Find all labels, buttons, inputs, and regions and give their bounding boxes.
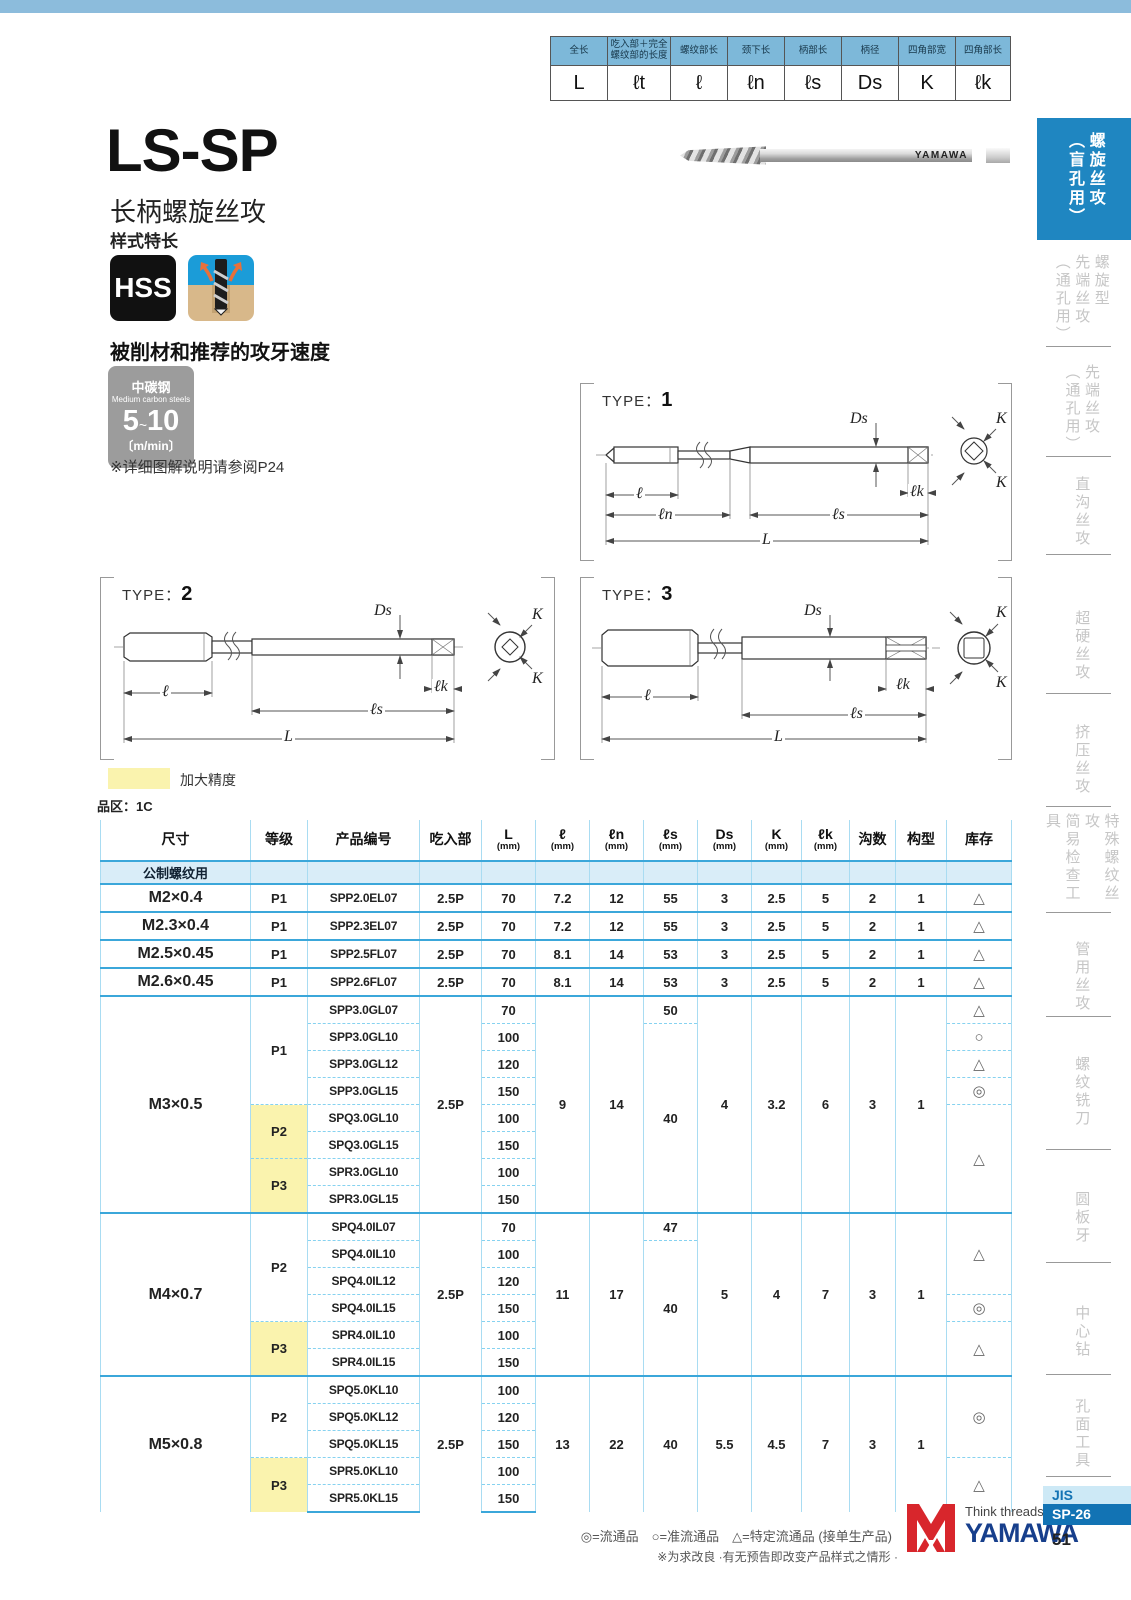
table-cell: SPR3.0GL15 — [308, 1186, 420, 1214]
sidebar-tab-spiral-tap-blind-hole[interactable]: 螺旋丝攻 （盲孔用） — [1037, 118, 1131, 240]
top-bar — [0, 0, 1131, 13]
table-cell: 2.5 — [752, 968, 802, 996]
dim-label-ls: ℓs — [368, 702, 385, 718]
table-cell: 2.5P — [420, 884, 482, 912]
col-grade: 等级 — [251, 820, 308, 861]
dim-label-ds: Ds — [848, 411, 870, 427]
table-cell: 1 — [896, 912, 947, 940]
table-cell: SPR3.0GL10 — [308, 1159, 420, 1186]
table-cell: SPQ4.0IL12 — [308, 1268, 420, 1295]
col-lk: ℓk(mm) — [802, 820, 850, 861]
dim-col-symbol: ℓk — [956, 66, 1011, 101]
table-cell — [850, 861, 896, 884]
sidebar-tab-hole-surface-tools[interactable]: 孔面工具 — [1032, 1390, 1131, 1477]
dimension-legend-table: 全长 吃入部＋完全螺纹部的长度 螺纹部长 颈下长 柄部长 柄径 四角部宽 四角部… — [550, 36, 1011, 101]
table-cell: 2.5P — [420, 996, 482, 1213]
table-cell: M5×0.8 — [101, 1376, 251, 1512]
speed-box: 中碳钢 Medium carbon steels 5~10 〔m/min〕 — [108, 366, 194, 468]
table-cell: M2.6×0.45 — [101, 968, 251, 996]
sidebar-tab-center-drill[interactable]: 中心钻 — [1032, 1288, 1131, 1375]
table-cell: SPQ5.0KL12 — [308, 1404, 420, 1431]
table-cell: SPQ4.0IL10 — [308, 1241, 420, 1268]
table-cell: 70 — [482, 912, 536, 940]
table-cell: 14 — [590, 968, 644, 996]
dim-col-cn: 螺纹部长 — [671, 37, 728, 66]
table-cell: SPP2.5FL07 — [308, 940, 420, 968]
table-cell — [698, 861, 752, 884]
hss-label: HSS — [114, 272, 172, 304]
col-l: ℓ(mm) — [536, 820, 590, 861]
table-cell: 1 — [896, 968, 947, 996]
table-cell: P1 — [251, 996, 308, 1105]
table-cell: SPR4.0IL10 — [308, 1322, 420, 1349]
table-cell: M3×0.5 — [101, 996, 251, 1213]
col-ls: ℓs(mm) — [644, 820, 698, 861]
table-cell: ○ — [947, 1024, 1012, 1051]
dim-col-cn: 全长 — [551, 37, 608, 66]
col-Ds: Ds(mm) — [698, 820, 752, 861]
table-cell: 14 — [590, 996, 644, 1213]
table-cell: △ — [947, 968, 1012, 996]
tap-square-end — [986, 148, 1010, 163]
table-cell: SPP2.6FL07 — [308, 968, 420, 996]
table-cell: SPP3.0GL10 — [308, 1024, 420, 1051]
table-cell: 7.2 — [536, 912, 590, 940]
table-cell: 150 — [482, 1431, 536, 1458]
table-cell: P3 — [251, 1159, 308, 1214]
table-cell: SPQ5.0KL15 — [308, 1431, 420, 1458]
col-flutes: 沟数 — [850, 820, 896, 861]
dim-label-l: ℓ — [160, 684, 171, 700]
table-cell: 5 — [802, 968, 850, 996]
table-cell: 150 — [482, 1349, 536, 1377]
dim-label-l: ℓ — [634, 486, 645, 502]
table-cell: P3 — [251, 1458, 308, 1513]
table-cell: 2.5 — [752, 912, 802, 940]
tap-flutes — [680, 146, 766, 165]
table-cell: 2.5P — [420, 912, 482, 940]
spec-header-row: 尺寸 等级 产品编号 吃入部 L(mm) ℓ(mm) ℓn(mm) ℓs(mm)… — [101, 820, 1012, 861]
dim-label-ln: ℓn — [656, 507, 675, 523]
table-cell: SPP3.0GL07 — [308, 996, 420, 1024]
table-row: M2×0.4P1SPP2.0EL072.5P707.2125532.5521△ — [101, 884, 1012, 912]
table-cell: 53 — [644, 968, 698, 996]
sidebar-tab-carbide-tap[interactable]: 超硬丝攻 — [1032, 598, 1131, 694]
table-cell: 2.5P — [420, 1376, 482, 1512]
page-subtitle: 长柄螺旋丝攻 — [110, 192, 266, 229]
table-cell: 1 — [896, 1376, 947, 1512]
table-cell: 50 — [644, 996, 698, 1024]
table-cell: SPP2.3EL07 — [308, 912, 420, 940]
table-cell: 11 — [536, 1213, 590, 1376]
sidebar-tab-round-die[interactable]: 圆板牙 — [1032, 1172, 1131, 1263]
dim-col-symbol: L — [551, 66, 608, 101]
table-cell: 100 — [482, 1322, 536, 1349]
table-cell: SPQ5.0KL10 — [308, 1376, 420, 1404]
oversize-legend-label: 加大精度 — [180, 770, 236, 790]
table-cell: △ — [947, 912, 1012, 940]
table-cell: 3 — [850, 996, 896, 1213]
style-note: 样式特长 — [110, 227, 178, 252]
dim-col-cn: 柄径 — [842, 37, 899, 66]
table-cell: M4×0.7 — [101, 1213, 251, 1376]
table-cell: P3 — [251, 1322, 308, 1377]
sidebar-tab-point-tap-through-hole[interactable]: 先端丝攻 （通孔用） — [1032, 360, 1131, 457]
table-cell: 2 — [850, 940, 896, 968]
sidebar-tab-special-thread-tools[interactable]: 特殊螺纹丝攻 简易检查工具 — [1032, 813, 1131, 913]
table-cell: 3 — [698, 968, 752, 996]
table-cell: 40 — [644, 1376, 698, 1512]
table-cell — [590, 861, 644, 884]
dim-col-cn: 吃入部＋完全螺纹部的长度 — [608, 37, 671, 66]
table-cell: 70 — [482, 1213, 536, 1241]
table-cell: SPR5.0KL10 — [308, 1458, 420, 1485]
table-cell: 53 — [644, 940, 698, 968]
table-cell: 70 — [482, 996, 536, 1024]
dim-label-k-bottom: K — [530, 671, 545, 687]
table-cell — [251, 861, 308, 884]
dim-label-k-top: K — [994, 605, 1009, 621]
dim-col-cn: 颈下长 — [728, 37, 785, 66]
col-K: K(mm) — [752, 820, 802, 861]
table-cell: 2.5 — [752, 940, 802, 968]
table-cell: 2 — [850, 912, 896, 940]
table-cell: 55 — [644, 912, 698, 940]
table-cell: 120 — [482, 1051, 536, 1078]
table-cell: 150 — [482, 1295, 536, 1322]
table-cell: SPP3.0GL15 — [308, 1078, 420, 1105]
table-row: M3×0.5P1SPP3.0GL072.5P709145043.2631△ — [101, 996, 1012, 1024]
dim-label-ls: ℓs — [830, 507, 847, 523]
dim-label-lk: ℓk — [908, 484, 926, 500]
table-cell: 40 — [644, 1241, 698, 1377]
col-L: L(mm) — [482, 820, 536, 861]
photo-brand-text: YAMAWA — [915, 150, 968, 161]
table-cell: △ — [947, 1213, 1012, 1295]
table-cell: M2.5×0.45 — [101, 940, 251, 968]
table-cell: 2.5P — [420, 1213, 482, 1376]
dim-col-symbol: ℓs — [785, 66, 842, 101]
dim-col-symbol: Ds — [842, 66, 899, 101]
catalog-page: 全长 吃入部＋完全螺纹部的长度 螺纹部长 颈下长 柄部长 柄径 四角部宽 四角部… — [0, 0, 1131, 1600]
table-cell: 3 — [698, 912, 752, 940]
table-cell: SPP2.0EL07 — [308, 884, 420, 912]
dim-col-cn: 柄部长 — [785, 37, 842, 66]
table-cell: 100 — [482, 1458, 536, 1485]
table-cell: 150 — [482, 1186, 536, 1214]
table-cell: △ — [947, 1051, 1012, 1078]
col-ln: ℓn(mm) — [590, 820, 644, 861]
table-cell — [947, 861, 1012, 884]
speed-heading: 被削材和推荐的攻牙速度 — [110, 336, 330, 365]
table-cell: 6 — [802, 996, 850, 1213]
table-cell: 70 — [482, 968, 536, 996]
table-cell: SPQ3.0GL10 — [308, 1105, 420, 1132]
table-cell: 5 — [802, 884, 850, 912]
table-cell: SPQ3.0GL15 — [308, 1132, 420, 1159]
table-cell: 150 — [482, 1485, 536, 1513]
table-cell: 120 — [482, 1404, 536, 1431]
dim-col-symbol: ℓ — [671, 66, 728, 101]
table-cell — [644, 861, 698, 884]
table-cell: 150 — [482, 1078, 536, 1105]
col-type: 构型 — [896, 820, 947, 861]
table-cell: P2 — [251, 1376, 308, 1458]
dim-label-lk: ℓk — [432, 679, 450, 695]
table-cell: 8.1 — [536, 968, 590, 996]
diagram-type-3: TYPE：3 — [580, 577, 1012, 760]
footer-note: ※为求改良 ·有无预告即改变产品样式之情形 · — [480, 1548, 898, 1565]
col-size: 尺寸 — [101, 820, 251, 861]
dim-label-l: ℓ — [642, 688, 653, 704]
table-cell: 17 — [590, 1213, 644, 1376]
table-cell: 9 — [536, 996, 590, 1213]
dim-col-symbol: K — [899, 66, 956, 101]
table-cell: 100 — [482, 1241, 536, 1268]
table-cell: 5 — [698, 1213, 752, 1376]
dim-label-ds: Ds — [372, 603, 394, 619]
yamawa-mark-icon — [903, 1498, 959, 1554]
dim-col-symbol: ℓt — [608, 66, 671, 101]
dim-label-ds: Ds — [802, 603, 824, 619]
dim-label-L: L — [282, 729, 295, 745]
table-cell — [752, 861, 802, 884]
table-cell: 3 — [850, 1376, 896, 1512]
table-cell: P2 — [251, 1213, 308, 1322]
table-cell: M2.3×0.4 — [101, 912, 251, 940]
table-row: M4×0.7P2SPQ4.0IL072.5P7011174754731△ — [101, 1213, 1012, 1241]
table-cell: SPQ4.0IL15 — [308, 1295, 420, 1322]
table-cell: ◎ — [947, 1078, 1012, 1105]
table-cell: 7 — [802, 1213, 850, 1376]
tap-drawing-type-3 — [580, 603, 1012, 759]
table-cell: 100 — [482, 1159, 536, 1186]
table-cell: 70 — [482, 940, 536, 968]
dim-label-k-top: K — [530, 607, 545, 623]
table-cell: 8.1 — [536, 940, 590, 968]
speed-range: 5~10 — [108, 406, 194, 438]
sidebar-tab-spiral-point-tap[interactable]: 螺旋型 先端丝攻 （通孔用） — [1032, 250, 1131, 347]
table-cell: M2×0.4 — [101, 884, 251, 912]
dim-col-cn: 四角部长 — [956, 37, 1011, 66]
table-cell: 100 — [482, 1376, 536, 1404]
material-cn: 中碳钢 — [108, 380, 194, 396]
table-cell: P2 — [251, 1105, 308, 1159]
dim-label-k-top: K — [994, 411, 1009, 427]
table-cell: △ — [947, 1105, 1012, 1214]
sidebar-tab-pipe-tap[interactable]: 管用丝攻 — [1032, 936, 1131, 1017]
table-cell: 4 — [698, 996, 752, 1213]
dimension-legend-header-row: 全长 吃入部＋完全螺纹部的长度 螺纹部长 颈下长 柄部长 柄径 四角部宽 四角部… — [551, 37, 1011, 66]
table-cell: △ — [947, 884, 1012, 912]
table-cell: 2.5 — [752, 884, 802, 912]
col-chamfer: 吃入部 — [420, 820, 482, 861]
table-cell: 3 — [698, 940, 752, 968]
table-cell: 100 — [482, 1105, 536, 1132]
oversize-yellow-swatch — [108, 768, 170, 789]
dimension-legend-symbol-row: L ℓt ℓ ℓn ℓs Ds K ℓk — [551, 66, 1011, 101]
tap-drawing-type-2 — [100, 603, 555, 759]
table-cell: 12 — [590, 912, 644, 940]
table-cell — [482, 861, 536, 884]
table-cell: SPR4.0IL15 — [308, 1349, 420, 1377]
table-cell: P1 — [251, 912, 308, 940]
table-cell: 7 — [802, 1376, 850, 1512]
col-stock: 库存 — [947, 820, 1012, 861]
table-cell: ◎ — [947, 1295, 1012, 1322]
table-cell: 1 — [896, 996, 947, 1213]
diagram-type-1: TYPE：1 — [580, 383, 1012, 561]
dim-label-lk: ℓk — [894, 677, 912, 693]
diagram-type-2: TYPE：2 — [100, 577, 555, 760]
dim-label-L: L — [772, 729, 785, 745]
table-cell: 2.5P — [420, 940, 482, 968]
table-cell: 1 — [896, 1213, 947, 1376]
table-cell: 14 — [590, 940, 644, 968]
sidebar-tab-forming-tap[interactable]: 挤压丝攻 — [1032, 712, 1131, 807]
table-cell: 4 — [752, 1213, 802, 1376]
table-cell: 5 — [802, 912, 850, 940]
table-cell: 3 — [850, 1213, 896, 1376]
table-cell: 5.5 — [698, 1376, 752, 1512]
table-cell: 2.5P — [420, 968, 482, 996]
table-cell: 1 — [896, 940, 947, 968]
table-cell — [536, 861, 590, 884]
table-cell: 47 — [644, 1213, 698, 1241]
table-cell — [896, 861, 947, 884]
table-row: M2.3×0.4P1SPP2.3EL072.5P707.2125532.5521… — [101, 912, 1012, 940]
table-cell — [308, 861, 420, 884]
table-cell: P1 — [251, 940, 308, 968]
sidebar-tab-straight-flute-tap[interactable]: 直沟丝攻 — [1032, 468, 1131, 555]
catalog-code-badge: SP-26 — [1043, 1504, 1131, 1525]
table-cell: △ — [947, 940, 1012, 968]
hss-badge: HSS — [110, 255, 176, 321]
sidebar-tab-thread-mill[interactable]: 螺纹铣刀 — [1032, 1033, 1131, 1150]
table-cell: 55 — [644, 884, 698, 912]
spec-table-body: 公制螺纹用M2×0.4P1SPP2.0EL072.5P707.2125532.5… — [101, 861, 1012, 1512]
page-title: LS-SP — [106, 116, 278, 185]
speed-note: ※详细图解说明请参阅P24 — [110, 456, 284, 477]
jis-badge: JIS — [1043, 1486, 1131, 1504]
tap-drawing-type-1 — [580, 409, 1012, 559]
table-cell — [420, 861, 482, 884]
table-cell: P1 — [251, 968, 308, 996]
table-cell: 70 — [482, 884, 536, 912]
table-cell: 40 — [644, 1024, 698, 1214]
stock-symbol-legend: ◎=流通品 ○=准流通品 △=特定流通品 (接单生产品) — [480, 1526, 892, 1545]
table-cell: SPR5.0KL15 — [308, 1485, 420, 1513]
table-cell: 12 — [590, 884, 644, 912]
speed-unit: 〔m/min〕 — [108, 437, 194, 454]
table-row: M2.6×0.45P1SPP2.6FL072.5P708.1145332.552… — [101, 968, 1012, 996]
dim-col-symbol: ℓn — [728, 66, 785, 101]
dim-label-k-bottom: K — [994, 475, 1009, 491]
dim-col-cn: 四角部宽 — [899, 37, 956, 66]
table-cell: 120 — [482, 1268, 536, 1295]
table-cell: SPP3.0GL12 — [308, 1051, 420, 1078]
table-cell: 5 — [802, 940, 850, 968]
dim-label-ls: ℓs — [848, 706, 865, 722]
table-cell: 2 — [850, 968, 896, 996]
table-cell: 4.5 — [752, 1376, 802, 1512]
table-cell: 22 — [590, 1376, 644, 1512]
table-cell: 2 — [850, 884, 896, 912]
col-product-code: 产品编号 — [308, 820, 420, 861]
table-cell: 公制螺纹用 — [101, 861, 251, 884]
table-cell: ◎ — [947, 1376, 1012, 1458]
page-number: 51 — [1052, 1530, 1071, 1550]
dim-label-L: L — [760, 532, 773, 548]
table-cell: △ — [947, 1322, 1012, 1377]
product-photo: YAMAWA — [676, 136, 1012, 176]
table-cell: 100 — [482, 1024, 536, 1051]
table-cell: 3.2 — [752, 996, 802, 1213]
table-row: M2.5×0.45P1SPP2.5FL072.5P708.1145332.552… — [101, 940, 1012, 968]
table-cell: P1 — [251, 884, 308, 912]
spec-table: 尺寸 等级 产品编号 吃入部 L(mm) ℓ(mm) ℓn(mm) ℓs(mm)… — [100, 820, 1012, 1513]
table-cell: 150 — [482, 1132, 536, 1159]
table-row: M5×0.8P2SPQ5.0KL102.5P1001322405.54.5731… — [101, 1376, 1012, 1404]
table-cell: 1 — [896, 884, 947, 912]
table-cell: 7.2 — [536, 884, 590, 912]
spiral-tap-icon — [188, 255, 254, 321]
table-row: 公制螺纹用 — [101, 861, 1012, 884]
table-cell: 13 — [536, 1376, 590, 1512]
table-cell: △ — [947, 996, 1012, 1024]
dim-label-k-bottom: K — [994, 675, 1009, 691]
series-label: 品区：1C — [97, 796, 153, 815]
table-cell: 3 — [698, 884, 752, 912]
table-cell — [802, 861, 850, 884]
table-cell: SPQ4.0IL07 — [308, 1213, 420, 1241]
